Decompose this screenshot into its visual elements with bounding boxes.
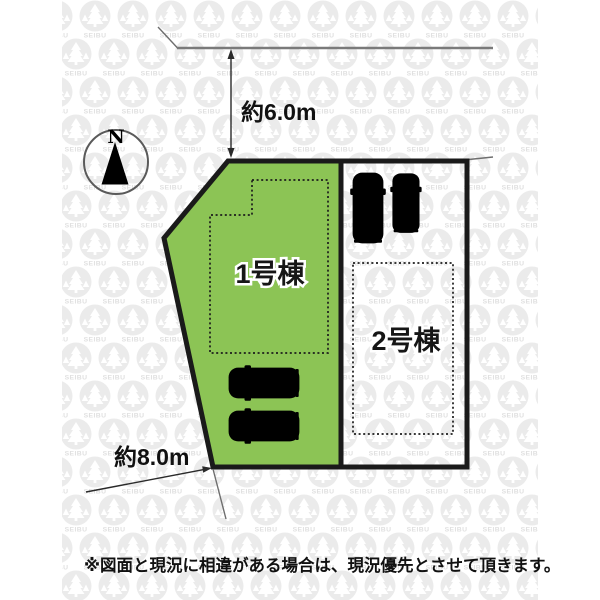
dimension-top-label: 約6.0m — [241, 99, 316, 125]
car-teal-compact-lot2 — [390, 173, 421, 232]
site-plan-drawing: SEIBU — [0, 0, 600, 600]
car-gray-bottom-lot1 — [229, 408, 300, 444]
dimension-left-label: 約8.0m — [114, 444, 189, 470]
building2-label: 2号棟 — [371, 326, 441, 356]
site-plan-canvas: SEIBU — [0, 0, 600, 600]
footer-disclaimer: ※図面と現況に相違がある場合は、現況優先とさせて頂きます。 — [84, 555, 560, 575]
building1-label: 1号棟 — [235, 259, 305, 289]
compass-north-label: N — [107, 126, 124, 148]
car-gray-suv-lot2 — [350, 173, 386, 244]
car-gray-top-lot1 — [229, 365, 300, 401]
